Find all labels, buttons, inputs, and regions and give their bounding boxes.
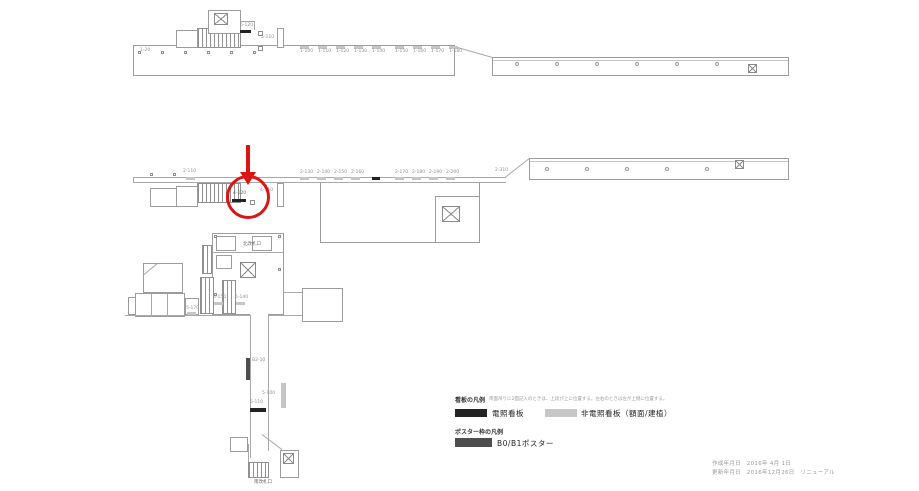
- footer-updated-date: 更新年月日 2016年12月26日 リニューアル: [712, 468, 835, 476]
- drawing-canvas: 5-120 5-110 1-20 1-100 1-110 1-120 1-130…: [0, 0, 919, 491]
- footer-created-date: 作成年月日 2016年 4月 1日: [712, 459, 791, 467]
- footer: 作成年月日 2016年 4月 1日 更新年月日 2016年12月26日 リニュー…: [0, 0, 919, 491]
